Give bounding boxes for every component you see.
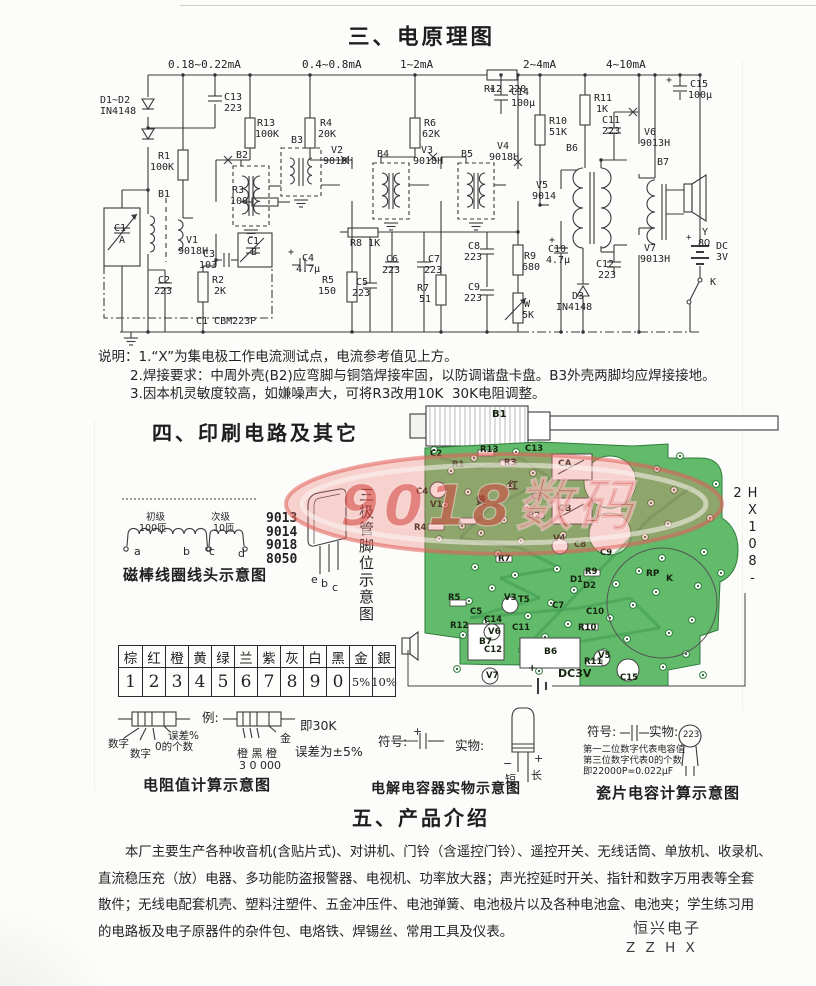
schematic-label: C5 [356,278,368,288]
pcb-ref-label: C5 [470,608,482,617]
schematic-label: C2 [158,276,170,286]
section4-title: 四、印刷电路及其它 [152,417,359,446]
ceramic-cap-caption: 瓷片电容计算示意图 [596,782,740,803]
schematic-label: V6 [644,128,656,138]
transistor-model: 8050 [266,553,297,567]
pcb-ref-label: C14 [484,616,502,625]
schematic-labels: 0.18~0.22mA0.4~0.8mA1~2mA2~4mA4~10mAR12 … [0,0,816,352]
color-name-cell: 黄 [188,646,211,668]
scanned-manual-page: 三、电原理图 0.18~0.22mA0.4~0.8mA1~2mA2~4mA4~1… [0,0,816,986]
schematic-label: C10 [548,245,566,255]
pcb-ref-label: V6 [488,628,501,637]
schematic-label: 9018H [489,153,519,163]
schematic-label: D3 [572,292,584,302]
schematic-label: W [524,300,530,310]
pcb-ref-label: C2 [430,450,442,459]
schematic-label: 223 [464,253,482,263]
schematic-label: 100μ [688,91,712,101]
schematic-label: 223 [154,287,172,297]
schematic-label: R13 [257,119,275,129]
schematic-label: A [119,236,125,246]
pcb-ref-label: C11 [512,624,530,633]
schematic-label: R4 [320,119,332,129]
schematic-label: R1 [158,152,170,162]
schematic-label: R5 [322,276,334,286]
pcb-ref-label: C8 [574,541,586,550]
pcb-ref-label: V7 [486,672,499,681]
pcb-ref-label: C12 [484,646,502,655]
schematic-label: R3 [232,186,244,196]
schematic-label: 4.7μ [296,265,320,275]
pcb-ref-label: CA [558,460,572,469]
schematic-label: IN4148 [556,303,592,313]
schematic-label: 223 [224,104,242,114]
schematic-label: V3 [421,146,433,156]
pcb-ref-label: + [528,664,536,674]
intro-line: 本厂主要生产各种收音机(含贴片式)、对讲机、门铃（含遥控门铃）、遥控开关、无线话… [125,840,772,860]
schematic-label: C4 [302,254,314,264]
schematic-label: C15 [690,80,708,90]
schematic-label: 0.4~0.8mA [302,59,362,70]
schematic-label: 100K [255,130,279,140]
schematic-label: 4.7μ [546,256,570,266]
color-name-cell: 灰 [280,646,303,668]
note-line: 2.焊接要求：中周外壳(B2)应弯脚与铜箔焊接牢固，以防调谐盘卡盘。B3外壳两脚… [130,364,716,384]
transistor-model-list: 9013901490188050 [266,512,297,566]
schematic-label: 100μ [511,99,535,109]
footer-company: 恒兴电子 [633,917,701,938]
schematic-label: C1 [247,237,259,247]
color-name-cell: 兰 [234,646,257,668]
pcb-ref-label: 黄 [476,497,486,507]
schematic-label: C1 [114,224,126,234]
schematic-label: C12 [596,260,614,270]
schematic-label: + [489,85,495,95]
color-name-cell: 红 [142,646,165,668]
pcb-ref-label: R4 [414,524,426,533]
schematic-label: 223 [598,271,616,281]
schematic-label: 5K [522,311,534,321]
schematic-label: 9018H [323,157,353,167]
color-name-cell: 绿 [211,646,234,668]
note-line: 说明：1.“X”为集电极工作电流测试点，电流参考值见上方。 [98,345,458,365]
schematic-label: C9 [468,283,480,293]
schematic-label: Y [702,228,708,238]
schematic-label: 8Ω [698,239,710,249]
pcb-ref-label: C7 [552,602,564,611]
schematic-label: V4 [497,142,509,152]
pcb-ref-label: V4 [553,535,566,544]
schematic-label: + [288,248,294,258]
schematic-label: C6 [386,255,398,265]
pcb-ref-label: V3 [504,594,517,603]
footer-code: Z Z H X [626,940,698,956]
schematic-label: B5 [461,150,473,160]
color-name-cell: 橙 [165,646,188,668]
schematic-label: R2 [212,276,224,286]
rod-coil-diagram [112,492,272,562]
pcb-ref-label: D2 [583,582,596,591]
schematic-label: + [686,234,691,243]
schematic-label: B6 [566,144,578,154]
transistor-model: 9013 [266,512,297,526]
coil-caption: 磁棒线圈线头示意图 [123,564,267,585]
schematic-label: 150 [318,287,336,297]
color-name-cell: 紫 [257,646,280,668]
pcb-ref-label: K [666,575,673,584]
schematic-label: B4 [377,150,389,160]
schematic-label: IN4148 [100,107,136,117]
schematic-label: R6 [424,119,436,129]
schematic-label: B [251,248,257,258]
schematic-label: 2K [214,287,226,297]
color-name-cell: 金 [349,646,372,668]
intro-line: 直流稳压充（放）电器、多功能防盗报警器、电视机、功率放大器；声光控延时开关、指针… [98,867,754,887]
pcb-illustration: B1C2R1R13R3C13CACBC3黄红R2C4V1R4R7V4C8C9R5… [400,398,800,700]
pcb-ref-label: B6 [544,648,557,657]
pcb-ref-label: C4 [416,488,428,497]
schematic-label: 9013H [640,139,670,149]
schematic-label: C8 [468,242,480,252]
pcb-ref-label: R13 [480,446,498,455]
pcb-ref-label: R3 [504,459,516,468]
pcb-ref-label: RP [646,570,660,579]
pcb-ref-label: R2 [528,512,540,521]
pcb-ref-label: 红 [508,482,518,492]
schematic-label: 4~10mA [606,59,646,70]
schematic-label: 223 [602,127,620,137]
schematic-label: + [549,236,555,246]
schematic-label: 680 [522,263,540,273]
schematic-label: V2 [331,146,343,156]
pcb-ref-label: R12 [450,622,468,631]
schematic-label: C1 CBM223P [196,317,256,327]
pcb-board-code: HX108-2 [730,486,760,576]
pcb-ref-label: R5 [448,594,460,603]
schematic-label: 62K [422,130,440,140]
schematic-label: 51K [549,128,567,138]
schematic-label: 9018H [413,157,443,167]
schematic-label: 223 [382,266,400,276]
schematic-label: 100 [230,197,248,207]
pcb-ref-label: B1 [492,410,507,420]
schematic-label: R7 [417,284,429,294]
color-name-cell: 銀 [372,646,395,668]
color-name-cell: 棕 [119,646,142,668]
schematic-label: B3 [291,136,303,146]
schematic-label: B7 [657,158,669,168]
color-name-cell: 黑 [326,646,349,668]
schematic-label: C7 [428,255,440,265]
pcb-ref-label: R7 [498,555,510,564]
resistor-calc-caption: 电阻值计算示意图 [143,774,271,795]
pcb-ref-label: C9 [600,549,612,558]
schematic-label: D1~D2 [100,96,130,106]
pcb-ref-label: V1 [430,501,443,510]
pcb-ref-label: T5 [518,596,530,605]
pcb-ref-label: V5 [598,652,611,661]
color-name-cell: 白 [303,646,326,668]
schematic-label: C11 [602,116,620,126]
schematic-label: 51 [419,295,431,305]
schematic-label: R9 [524,252,536,262]
schematic-label: 3V [716,253,728,263]
intro-line: 散件；无线电配套机壳、塑料注塑件、五金冲压件、电池弹簧、电池极片以及各种电池盒、… [98,893,754,913]
schematic-label: 2~4mA [523,59,556,70]
schematic-label: V1 [186,236,198,246]
transistor-model: 9018 [266,539,297,553]
pcb-ref-label: R1 [452,461,464,470]
schematic-label: 9013H [640,255,670,265]
pcb-ref-label: C13 [525,445,543,454]
schematic-label: R10 [549,117,567,127]
transistor-caption-vertical: 三极管脚位示意图 [356,487,377,637]
pcb-ref-label: C3 [531,493,543,502]
schematic-label: 223 [424,266,442,276]
schematic-label: 20K [318,130,336,140]
pcb-ref-label: C10 [586,608,604,617]
ecap-caption: 电解电容器实物示意图 [371,778,521,798]
pcb-ref-label: R9 [585,568,597,577]
to92-outline [298,486,362,586]
schematic-label: K [710,278,716,288]
schematic-label: V5 [536,181,548,191]
pcb-ref-label: DC3V [558,668,591,679]
schematic-label: 223 [464,294,482,304]
section5-title: 五、产品介绍 [352,802,490,831]
schematic-label: R8 1K [350,239,380,249]
schematic-label: C13 [224,93,242,103]
schematic-label: 9014 [532,192,556,202]
schematic-label: 100K [150,163,174,173]
pcb-ref-label: C15 [620,674,638,683]
pcb-ref-label: D1 [570,576,583,585]
schematic-label: + [666,76,672,86]
transistor-model: 9014 [266,526,297,540]
pcb-ref-label: CB [558,505,571,514]
schematic-label: 223 [352,289,370,299]
schematic-label: C14 [511,88,529,98]
schematic-label: B1 [158,190,170,200]
schematic-label: R11 [594,94,612,104]
pcb-ref-label: R10 [578,624,596,633]
schematic-label: DC [716,242,728,252]
schematic-label: V7 [644,244,656,254]
schematic-label: B2 [236,151,248,161]
schematic-label: 1~2mA [400,59,433,70]
schematic-label: C3 [203,250,215,260]
schematic-label: 0.18~0.22mA [168,59,241,70]
intro-line: 的电路板及电子原器件的杂件包、电烙铁、焊锡丝、常用工具及仪表。 [98,920,513,940]
schematic-label: 103 [199,261,217,271]
schematic-label: 1K [596,105,608,115]
